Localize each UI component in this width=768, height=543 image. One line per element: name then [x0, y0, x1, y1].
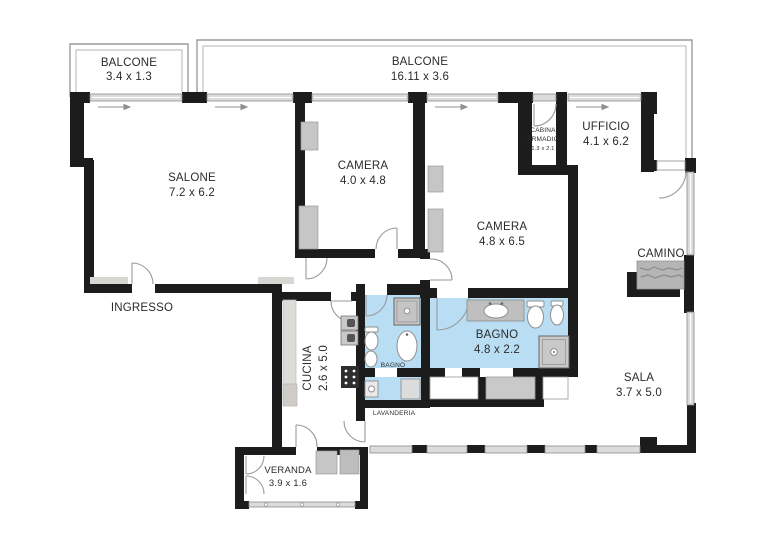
bathtub — [397, 331, 417, 361]
wall — [478, 377, 486, 400]
veranda-label: VERANDA — [264, 465, 312, 476]
bagno-grande-label: BAGNO — [476, 329, 519, 341]
wall — [182, 92, 207, 103]
wall — [527, 445, 545, 453]
wall — [627, 289, 680, 297]
balcone-left-label: BALCONE — [101, 57, 157, 69]
window — [427, 446, 467, 453]
wall — [687, 403, 696, 453]
bagno-grande-dims: 4.8 x 2.2 — [474, 344, 520, 356]
wall — [556, 92, 567, 175]
wall — [360, 447, 368, 509]
wall — [468, 288, 578, 298]
salone-dims: 7.2 x 6.2 — [169, 187, 215, 199]
lavanderia-label: LAVANDERIA — [373, 410, 416, 417]
ufficio-sala-door — [657, 161, 686, 198]
wall — [235, 447, 296, 455]
veranda-door — [296, 425, 317, 447]
kitchen-appliance-stack — [341, 316, 358, 345]
cabina-dims: 1.3 x 2.1 — [531, 146, 554, 152]
vanity-sink — [467, 300, 524, 321]
radiator — [90, 277, 128, 284]
sala-label: SALA — [624, 372, 654, 384]
camera1-dims: 4.0 x 4.8 — [340, 175, 386, 187]
wall — [585, 445, 597, 453]
wardrobe — [301, 122, 318, 150]
slide-arrow-icon — [435, 105, 467, 110]
kitchen-counter-sink — [283, 384, 297, 406]
wall — [356, 407, 365, 421]
cabina-armadio-door — [534, 104, 556, 126]
cucina-dims: 2.6 x 5.0 — [318, 345, 330, 391]
window — [545, 446, 585, 453]
cabina-label-1: CABINA — [530, 127, 556, 134]
labels: BALCONE 3.4 x 1.3 BALCONE 16.11 x 3.6 SA… — [101, 56, 685, 489]
stove-icon — [341, 366, 359, 388]
salone-label: SALONE — [168, 172, 216, 184]
camera2-door — [430, 259, 452, 280]
window — [370, 446, 412, 453]
window — [597, 446, 640, 453]
laundry-sink — [365, 381, 378, 397]
wall — [640, 445, 688, 453]
passage-door — [344, 421, 365, 442]
wall — [412, 445, 427, 453]
wardrobe — [299, 206, 318, 249]
washing-machine — [401, 379, 420, 399]
wall — [272, 292, 331, 301]
wall — [462, 368, 480, 377]
toilet — [527, 301, 544, 328]
wall — [293, 92, 312, 103]
wall — [295, 249, 375, 258]
cabina-label-2: ARMADIO — [527, 136, 559, 143]
window-pane-mark — [336, 503, 339, 506]
cucina-label: CUCINA — [302, 345, 314, 390]
veranda-dims: 3.9 x 1.6 — [269, 478, 307, 489]
camera1-door — [376, 228, 397, 249]
wall — [641, 160, 657, 171]
slide-arrow-icon — [576, 105, 608, 110]
balcone-top-dims: 16.11 x 3.6 — [391, 71, 449, 83]
bagno-piccolo-label: BAGNO — [381, 362, 405, 369]
fireplace — [637, 261, 684, 289]
bidet — [551, 301, 564, 325]
wall — [397, 368, 430, 377]
wardrobe — [428, 166, 443, 192]
window — [533, 94, 556, 101]
wall — [535, 377, 543, 400]
slide-arrow-icon — [98, 105, 130, 110]
shower — [539, 336, 569, 368]
wall — [356, 400, 430, 408]
floor-plan-page: BALCONE 3.4 x 1.3 BALCONE 16.11 x 3.6 SA… — [0, 0, 768, 543]
wall — [684, 255, 694, 313]
wall — [235, 501, 249, 509]
window-pane-mark — [264, 503, 267, 506]
ufficio-label: UFFICIO — [582, 121, 629, 133]
appliance — [316, 451, 337, 474]
wall — [235, 447, 244, 509]
sala-dims: 3.7 x 5.0 — [616, 387, 662, 399]
ingresso-label: INGRESSO — [111, 302, 173, 314]
camera2-label: CAMERA — [477, 221, 528, 233]
wall — [430, 368, 445, 377]
wall — [467, 445, 485, 453]
shower — [394, 298, 420, 325]
window-pane-mark — [300, 503, 303, 506]
balcone-top-label: BALCONE — [392, 56, 448, 68]
slide-arrow-icon — [215, 105, 247, 110]
camera2-dims: 4.8 x 6.5 — [479, 236, 525, 248]
balcone-left-dims: 3.4 x 1.3 — [106, 71, 152, 83]
wall — [425, 399, 544, 407]
wall — [408, 92, 427, 103]
wall — [84, 284, 132, 293]
wardrobe — [428, 209, 443, 252]
wall — [685, 158, 696, 173]
radiator — [258, 277, 294, 284]
wall — [421, 286, 430, 407]
appliance — [340, 450, 359, 474]
wall — [70, 92, 84, 165]
floor-plan: BALCONE 3.4 x 1.3 BALCONE 16.11 x 3.6 SA… — [0, 0, 768, 543]
veranda-french-doors — [246, 456, 264, 494]
bidet — [365, 351, 377, 367]
ufficio-dims: 4.1 x 6.2 — [583, 136, 629, 148]
closet-row — [430, 377, 568, 399]
wall — [272, 291, 282, 452]
wall — [84, 160, 94, 293]
wall — [356, 284, 365, 407]
entry-door — [132, 263, 153, 284]
camino-label: CAMINO — [637, 248, 684, 260]
toilet — [365, 327, 378, 350]
wall — [413, 103, 425, 255]
window — [485, 446, 527, 453]
wall — [420, 288, 437, 298]
camera1-label: CAMERA — [338, 160, 389, 172]
corridor-door — [306, 258, 327, 279]
wall — [155, 284, 282, 293]
